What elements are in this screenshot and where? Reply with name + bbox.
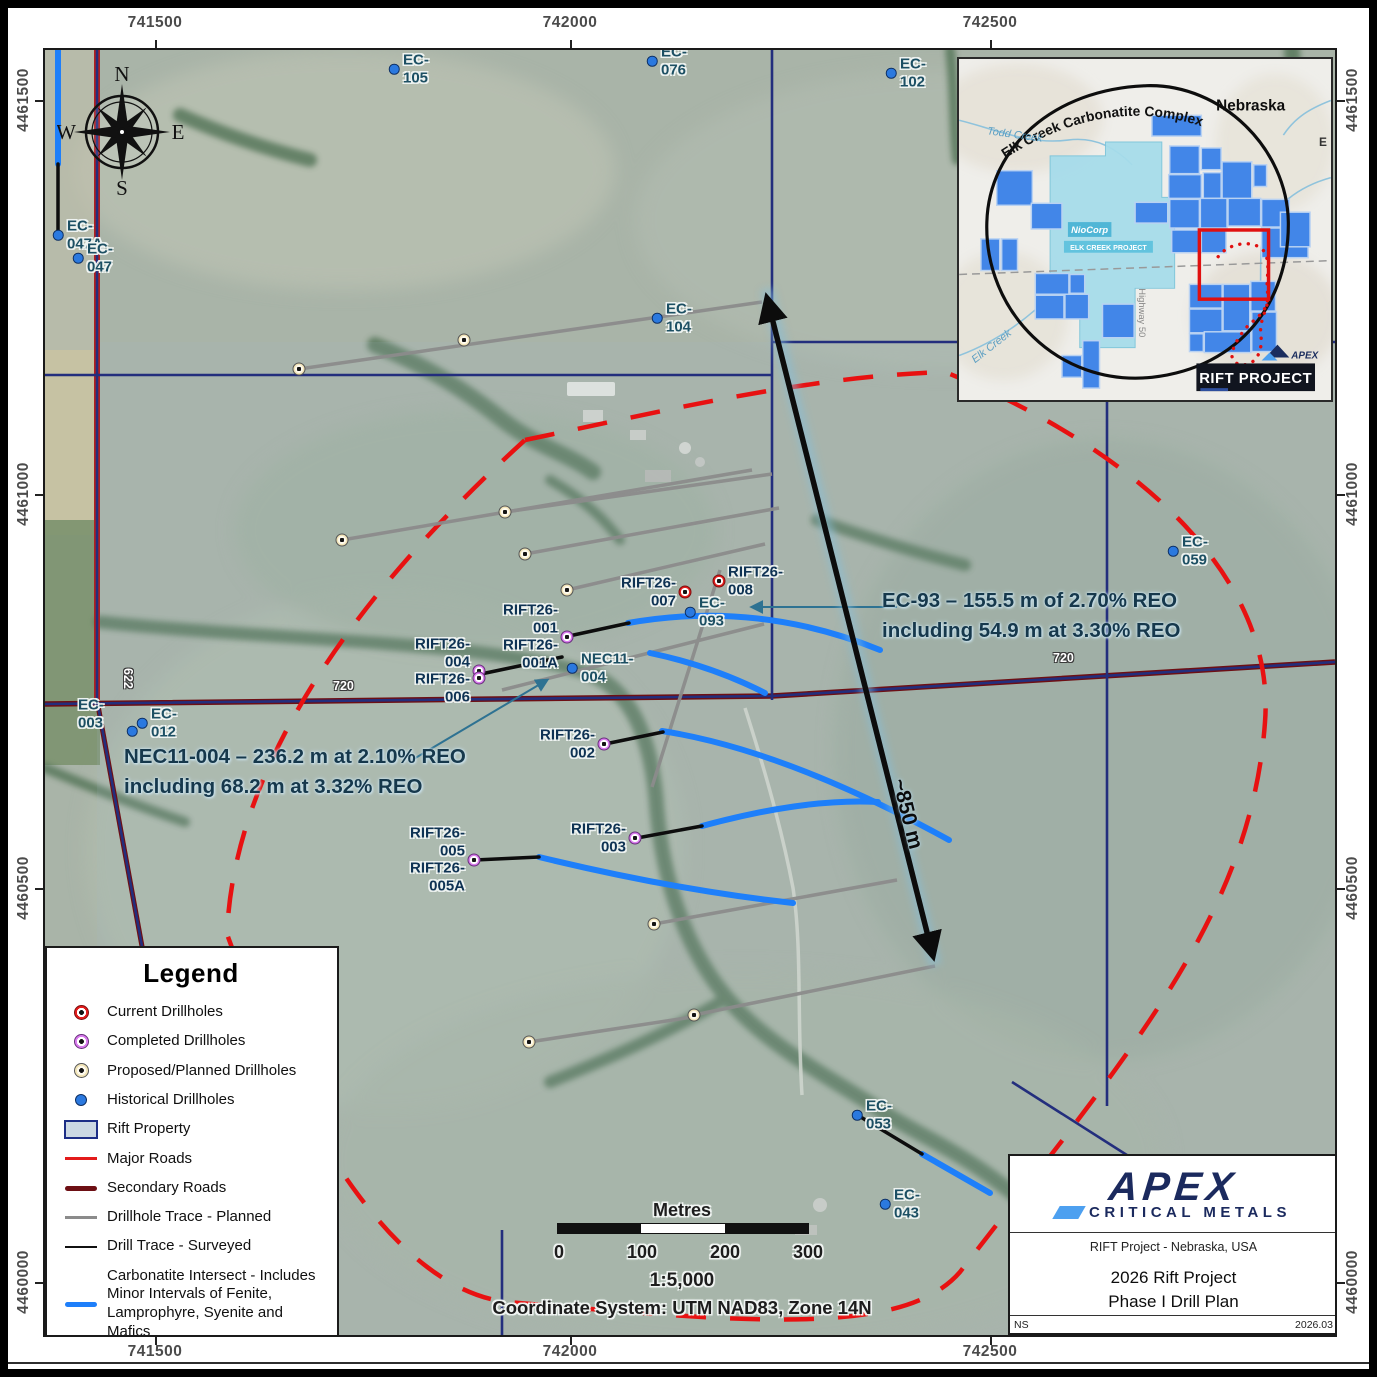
scalebar-200: 200 — [710, 1242, 740, 1263]
footer-initials: NS — [1014, 1319, 1029, 1331]
coordinate-system: Coordinate System: UTM NAD83, Zone 14N — [482, 1297, 882, 1319]
drillhole-dot — [886, 68, 897, 79]
drillhole-dot — [127, 726, 138, 737]
coord-top-1: 741500 — [128, 14, 183, 32]
rift-property-icon — [64, 1120, 98, 1139]
current-drillhole-icon — [74, 1005, 89, 1020]
bottom-rule — [8, 1362, 1369, 1364]
legend-item-completed: Completed Drillholes — [55, 1032, 327, 1051]
drillhole-dot — [688, 1009, 701, 1022]
coord-top-2: 742000 — [543, 14, 598, 32]
legend-item-rift-property: Rift Property — [55, 1120, 327, 1139]
coord-bottom-2: 742000 — [543, 1343, 598, 1361]
drillhole-dot — [598, 738, 611, 751]
drillhole-dot — [293, 363, 306, 376]
secondary-road-icon — [65, 1186, 97, 1191]
drillhole-label: EC-043 — [894, 1186, 920, 1221]
inset-highway-label: Highway 50 — [1137, 288, 1147, 337]
drillhole-label: EC-076 — [661, 48, 687, 79]
coord-left-1: 4461500 — [15, 68, 33, 132]
drillhole-dot — [458, 334, 471, 347]
scale-ratio: 1:5,000 — [602, 1270, 762, 1292]
inset-edge-letter: E — [1319, 135, 1327, 149]
drillhole-dot — [647, 56, 658, 67]
drillhole-label: RIFT26-004 RIFT26-006 — [415, 636, 470, 707]
drillhole-label: EC-059 — [1182, 533, 1208, 568]
drillhole-label: RIFT26-008 — [728, 563, 783, 598]
drillhole-dot — [468, 854, 481, 867]
legend-item-surveyed-trace: Drill Trace - Surveyed — [55, 1237, 327, 1256]
drillhole-dot — [389, 64, 400, 75]
drillhole-dot — [519, 548, 532, 561]
coord-right-3: 4460500 — [1344, 856, 1362, 920]
drillhole-dot — [1168, 546, 1179, 557]
drillhole-dot — [852, 1110, 863, 1121]
drillhole-dot — [629, 832, 642, 845]
drillhole-label: NEC11-004 — [581, 650, 634, 685]
drillhole-dot — [648, 918, 661, 931]
legend-item-current: Current Drillholes — [55, 1003, 327, 1022]
title-block-footer: NS 2026.03 — [1010, 1315, 1337, 1333]
drillhole-label: EC-053 — [866, 1097, 892, 1132]
surveyed-trace-icon — [65, 1246, 97, 1248]
coord-left-4: 4460000 — [15, 1250, 33, 1314]
coord-left-2: 4461000 — [15, 462, 33, 526]
drillhole-dot — [336, 534, 349, 547]
legend-item-major-roads: Major Roads — [55, 1150, 327, 1169]
logo-slash-icon — [1052, 1206, 1086, 1219]
scalebar-units: Metres — [622, 1200, 742, 1221]
drillhole-label: RIFT26-005 RIFT26-005A — [410, 825, 465, 896]
svg-text:APEX: APEX — [1290, 350, 1319, 361]
drillhole-dot — [713, 575, 726, 588]
annotation-ec93: EC-93 – 155.5 m of 2.70% REO including 5… — [882, 586, 1180, 645]
legend-item-secondary-roads: Secondary Roads — [55, 1179, 327, 1198]
major-road-icon — [65, 1157, 97, 1160]
footer-date: 2026.03 — [1295, 1319, 1333, 1331]
drillhole-label: EC-105 — [403, 51, 429, 86]
drillhole-label: EC-093 — [699, 594, 725, 629]
project-subtitle: RIFT Project - Nebraska, USA — [1010, 1240, 1337, 1254]
coord-right-2: 4461000 — [1344, 462, 1362, 526]
legend-item-proposed: Proposed/Planned Drillholes — [55, 1062, 327, 1081]
map-viewport[interactable]: N E S W 720 720 622 EC-105EC-076EC-102EC… — [43, 48, 1337, 1337]
drillhole-dot — [73, 253, 84, 264]
drillhole-dot — [499, 506, 512, 519]
scalebar-300: 300 — [793, 1242, 823, 1263]
carbonatite-intersect-icon — [65, 1302, 97, 1307]
historical-drillhole-icon — [75, 1094, 87, 1106]
drillhole-dot — [567, 663, 578, 674]
drillhole-dot — [561, 584, 574, 597]
scale-bar — [557, 1223, 809, 1234]
scalebar-0: 0 — [554, 1242, 564, 1263]
planned-trace-icon — [65, 1216, 97, 1219]
coord-top-3: 742500 — [963, 14, 1018, 32]
drillhole-label: EC-102 — [900, 55, 926, 90]
coord-left-3: 4460500 — [15, 856, 33, 920]
coord-right-1: 4461500 — [1344, 68, 1362, 132]
map-title: 2026 Rift Project Phase I Drill Plan — [1010, 1266, 1337, 1314]
drillhole-label: EC-104 — [666, 300, 692, 335]
proposed-drillhole-icon — [74, 1063, 89, 1078]
coord-bottom-1: 741500 — [128, 1343, 183, 1361]
drillhole-dot — [685, 607, 696, 618]
coord-bottom-3: 742500 — [963, 1343, 1018, 1361]
drillhole-label: EC-047 — [87, 240, 113, 275]
drillhole-label: EC-012 — [151, 705, 177, 740]
drillhole-label: RIFT26-001 RIFT26-001A — [503, 602, 558, 673]
inset-state-label: Nebraska — [1216, 97, 1285, 114]
apex-logo: APEX CRITICAL METALS — [1010, 1156, 1337, 1233]
legend-title: Legend — [55, 958, 327, 989]
inset-project-label: RIFT PROJECT — [1199, 371, 1312, 387]
legend-item-carbonatite: Carbonatite Intersect - Includes Minor I… — [55, 1267, 327, 1338]
inset-locator-map: Elk Creek Carbonatite Complex Nebraska T… — [957, 57, 1333, 402]
drillhole-label: RIFT26-003 — [571, 820, 626, 855]
brand-name: APEX — [1107, 1168, 1240, 1206]
drillhole-dot — [561, 631, 574, 644]
inset-niocorp-label: NioCorp — [1071, 225, 1108, 235]
drillhole-label: EC-003 — [78, 696, 104, 731]
drillhole-dot — [53, 230, 64, 241]
drillhole-dot — [523, 1036, 536, 1049]
scalebar-100: 100 — [627, 1242, 657, 1263]
drillhole-dot — [137, 718, 148, 729]
legend-item-planned-trace: Drillhole Trace - Planned — [55, 1208, 327, 1227]
title-block: APEX CRITICAL METALS RIFT Project - Nebr… — [1008, 1154, 1337, 1335]
legend: Legend Current Drillholes Completed Dril… — [45, 946, 339, 1337]
drillhole-label: RIFT26-007 — [621, 574, 676, 609]
drillhole-label: RIFT26-002 — [540, 726, 595, 761]
drillhole-dot — [473, 672, 486, 685]
coord-right-4: 4460000 — [1344, 1250, 1362, 1314]
annotation-nec11: NEC11-004 – 236.2 m at 2.10% REO includi… — [124, 742, 466, 801]
drillhole-dot — [880, 1199, 891, 1210]
drillhole-dot — [679, 586, 692, 599]
inset-niocorp-sub-label: ELK CREEK PROJECT — [1070, 244, 1147, 252]
drillhole-dot — [652, 313, 663, 324]
completed-drillhole-icon — [74, 1034, 89, 1049]
legend-item-historical: Historical Drillholes — [55, 1091, 327, 1110]
map-sheet: 741500 742000 742500 741500 742000 74250… — [0, 0, 1377, 1377]
